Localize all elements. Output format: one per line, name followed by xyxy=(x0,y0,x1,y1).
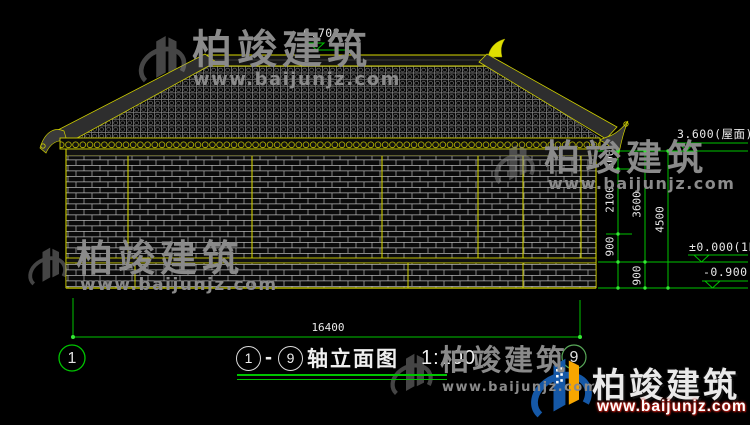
dim-16400: 16400 xyxy=(300,322,356,333)
watermark-url: www.baijunjz.com xyxy=(80,277,278,294)
cad-elevation-drawing: 6.708 3.600(屋面) ±0.000(1F) -0.900 600 21… xyxy=(0,0,750,425)
dim-4500: 4500 xyxy=(655,202,666,238)
ground-level-label: -0.900 xyxy=(703,267,748,279)
title-axis-start: 1 xyxy=(236,346,261,371)
watermark-url: www.baijunjz.com xyxy=(193,71,401,89)
watermark-brand: 柏竣建筑 xyxy=(192,30,372,70)
watermark-url: www.baijunjz.com xyxy=(548,176,735,192)
ridge-ornament xyxy=(488,39,505,57)
title-axis-end: 9 xyxy=(278,346,303,371)
dim-900-upper: 900 xyxy=(605,232,616,262)
title-underline-thick xyxy=(237,374,447,376)
title-underline-thin xyxy=(237,379,447,380)
dim-900-lower: 900 xyxy=(632,261,643,291)
axis-bubble-1: 1 xyxy=(61,350,83,368)
watermark-brand: 柏竣建筑 xyxy=(440,347,568,376)
watermark-url-color: www.baijunjz.com xyxy=(597,398,747,416)
watermark-brand: 柏竣建筑 xyxy=(76,240,244,277)
watermark-brand: 柏竣建筑 xyxy=(544,140,708,176)
title-dash: - xyxy=(265,346,274,370)
watermark-url: www.baijunjz.com xyxy=(442,381,599,394)
title-name: 轴立面图 xyxy=(307,343,399,373)
floor-level-label: ±0.000(1F) xyxy=(689,242,750,254)
eave-band xyxy=(60,138,600,149)
